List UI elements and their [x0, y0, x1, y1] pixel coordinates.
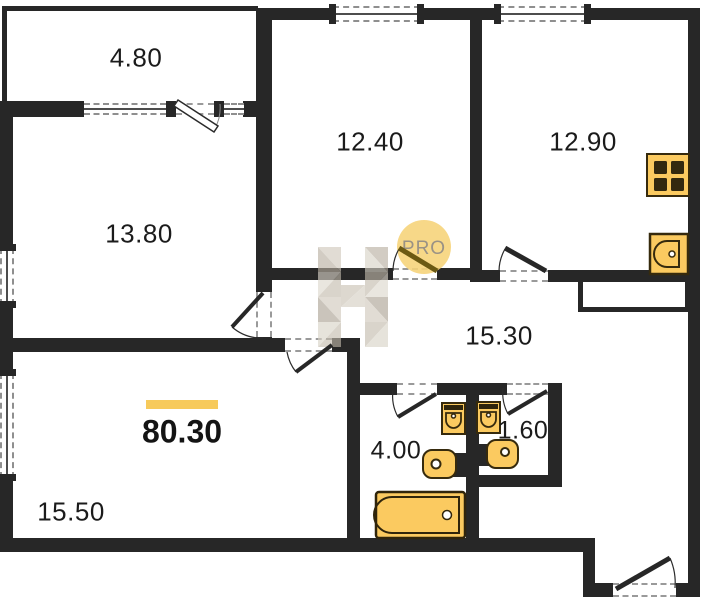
area-label-bathroom: 4.00: [371, 437, 422, 466]
window-cap: [494, 4, 501, 24]
stove-icon: [647, 154, 689, 196]
watermark-logo: [318, 247, 388, 347]
wall-segment: [256, 8, 272, 282]
area-label-room-12-40: 12.40: [336, 127, 404, 158]
door-opening: [500, 270, 548, 282]
wall-segment: [437, 268, 470, 280]
door-opening: [176, 103, 214, 115]
window: [224, 103, 244, 115]
window-cap: [0, 474, 16, 481]
wall-segment: [0, 338, 285, 352]
niche: [578, 282, 690, 312]
door-opening: [285, 338, 332, 352]
wall-segment: [420, 8, 498, 20]
window: [84, 103, 166, 115]
door-opening: [613, 583, 676, 597]
wall-segment: [470, 8, 482, 282]
wall-segment: [347, 345, 360, 552]
svg-text:PRO: PRO: [402, 238, 446, 259]
area-label-wc: 1.60: [498, 417, 549, 446]
wall-segment: [595, 583, 613, 597]
wall-segment: [0, 101, 13, 248]
window-cap: [0, 244, 16, 251]
area-label-room-13-80: 13.80: [105, 219, 173, 250]
window-cap: [417, 4, 424, 24]
wall-segment: [270, 8, 333, 20]
door-jamb: [214, 101, 224, 117]
window: [0, 373, 14, 478]
door-opening: [393, 268, 437, 280]
floor-plan: PRO: [0, 0, 701, 600]
wall-segment: [437, 383, 507, 395]
wall-segment: [262, 268, 393, 280]
bathtub-icon: [374, 492, 465, 538]
window: [498, 6, 587, 22]
toilet-icon: [442, 403, 465, 434]
wall-segment: [2, 6, 258, 11]
wall-segment: [347, 383, 397, 395]
washbasin-icon: [423, 450, 466, 478]
wall-segment: [466, 395, 479, 552]
total-area-accent-bar: [146, 400, 218, 409]
area-label-balcony: 4.80: [110, 43, 163, 74]
total-area-label: 80.30: [142, 414, 222, 451]
area-label-kitchen: 12.90: [549, 127, 617, 158]
door-opening: [256, 292, 272, 337]
wall-segment: [0, 538, 595, 552]
wall-segment: [548, 387, 562, 487]
area-label-hallway: 15.30: [465, 321, 533, 352]
window-cap: [329, 4, 336, 24]
wall-segment: [676, 583, 700, 597]
wall-segment: [256, 280, 272, 292]
wall-segment: [587, 8, 700, 20]
door-jamb: [166, 101, 176, 117]
kitchen-door: [499, 248, 546, 271]
window-cap: [0, 369, 16, 376]
area-label-living-room: 15.50: [37, 497, 105, 528]
window: [0, 248, 14, 305]
kitchen-sink-icon: [650, 234, 688, 274]
wall-segment: [548, 270, 700, 282]
wall-segment: [2, 6, 7, 106]
door-opening: [507, 383, 548, 395]
watermark-pro-badge: PRO: [397, 220, 451, 274]
door-opening: [397, 383, 437, 395]
window: [333, 6, 420, 22]
window-cap: [584, 4, 591, 24]
wall-segment: [470, 270, 500, 282]
window-cap: [0, 301, 16, 308]
toilet-icon: [477, 402, 500, 433]
wall-segment: [583, 552, 595, 597]
